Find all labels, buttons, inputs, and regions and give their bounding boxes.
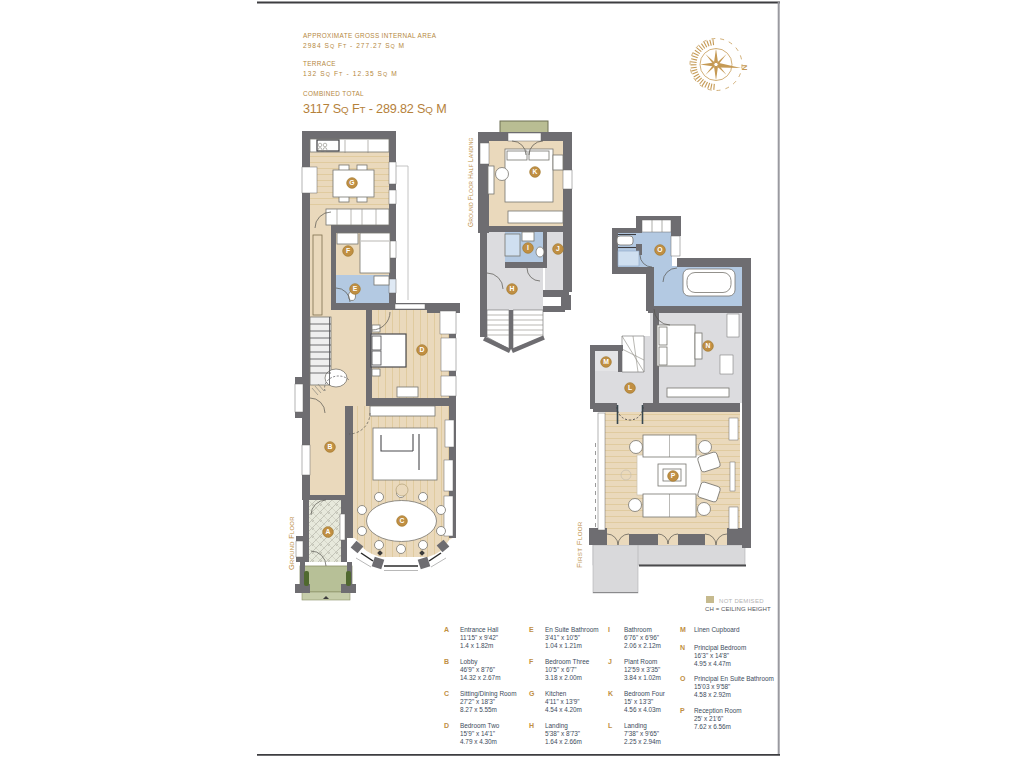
svg-text:L: L xyxy=(608,722,613,729)
svg-text:F: F xyxy=(346,247,350,254)
svg-text:O: O xyxy=(680,675,686,682)
svg-text:F: F xyxy=(529,658,534,665)
svg-text:Sitting/Dining Room: Sitting/Dining Room xyxy=(460,690,516,698)
svg-text:16'3" x 14'8": 16'3" x 14'8" xyxy=(694,652,729,659)
svg-text:11'15" x 9'42": 11'15" x 9'42" xyxy=(460,634,498,641)
svg-text:N: N xyxy=(740,65,749,71)
svg-text:J: J xyxy=(608,658,612,665)
svg-text:B: B xyxy=(444,658,449,665)
svg-text:A: A xyxy=(326,528,331,535)
svg-text:4.79 x 4.30m: 4.79 x 4.30m xyxy=(460,738,497,745)
svg-text:D: D xyxy=(444,722,449,729)
svg-text:4.56 x 4.03m: 4.56 x 4.03m xyxy=(624,706,661,713)
svg-text:COMBINED TOTAL: COMBINED TOTAL xyxy=(303,90,364,97)
svg-text:4'11" x 13'9": 4'11" x 13'9" xyxy=(545,698,580,705)
svg-text:1.04 x 1.21m: 1.04 x 1.21m xyxy=(545,642,582,649)
svg-text:7.62 x 6.56m: 7.62 x 6.56m xyxy=(694,723,731,730)
svg-text:E: E xyxy=(353,285,358,292)
svg-text:O: O xyxy=(657,246,662,253)
svg-text:1.4 x 1.82m: 1.4 x 1.82m xyxy=(460,642,493,649)
svg-text:15'03 x 9'58": 15'03 x 9'58" xyxy=(694,683,730,690)
svg-text:Bedroom Two: Bedroom Two xyxy=(460,722,500,729)
svg-text:G: G xyxy=(349,179,354,186)
svg-text:7'38" x 9'65": 7'38" x 9'65" xyxy=(624,730,659,737)
svg-text:132 SQ FT - 12.35 SQ M: 132 SQ FT - 12.35 SQ M xyxy=(303,70,398,77)
svg-text:NOT DEMISED: NOT DEMISED xyxy=(719,598,764,604)
svg-text:Entrance Hall: Entrance Hall xyxy=(460,626,498,633)
svg-text:GROUND FLOOR: GROUND FLOOR xyxy=(287,516,296,570)
svg-text:12'59 x 3'35": 12'59 x 3'35" xyxy=(624,666,660,673)
svg-text:TERRACE: TERRACE xyxy=(303,60,336,67)
svg-text:L: L xyxy=(628,384,632,391)
svg-text:H: H xyxy=(529,722,534,729)
svg-text:A: A xyxy=(444,626,449,633)
svg-text:10'5" x 6'7": 10'5" x 6'7" xyxy=(545,666,577,673)
svg-text:4.58 x 2.92m: 4.58 x 2.92m xyxy=(694,691,731,698)
svg-text:8.27 x 5.55m: 8.27 x 5.55m xyxy=(460,706,497,713)
svg-text:5'38" x 8'73": 5'38" x 8'73" xyxy=(545,730,580,737)
svg-text:Landing: Landing xyxy=(624,722,647,730)
svg-text:6'76" x 6'96": 6'76" x 6'96" xyxy=(624,634,659,641)
svg-text:J: J xyxy=(556,245,560,252)
svg-text:4.95 x 4.47m: 4.95 x 4.47m xyxy=(694,660,731,667)
svg-text:I: I xyxy=(527,244,529,251)
svg-text:En Suite Bathroom: En Suite Bathroom xyxy=(545,626,599,633)
svg-text:2984 SQ FT - 277.27 SQ M: 2984 SQ FT - 277.27 SQ M xyxy=(303,42,405,49)
svg-text:GROUND FLOOR HALF LANDING: GROUND FLOOR HALF LANDING xyxy=(467,137,474,227)
svg-text:Principal Bedroom: Principal Bedroom xyxy=(694,644,746,652)
svg-text:25' x 21'6": 25' x 21'6" xyxy=(694,715,723,722)
svg-text:M: M xyxy=(680,626,686,633)
svg-text:D: D xyxy=(420,346,425,353)
svg-text:Bathroom: Bathroom xyxy=(624,626,652,633)
svg-text:P: P xyxy=(680,707,685,714)
svg-text:K: K xyxy=(608,690,613,697)
svg-text:Lobby: Lobby xyxy=(460,658,478,666)
svg-text:H: H xyxy=(510,285,515,292)
svg-text:Linen Cupboard: Linen Cupboard xyxy=(694,626,740,634)
svg-text:N: N xyxy=(706,342,711,349)
svg-text:2.25 x 2.94m: 2.25 x 2.94m xyxy=(624,738,661,745)
svg-text:Kitchen: Kitchen xyxy=(545,690,567,697)
svg-text:46'9" x 8'76": 46'9" x 8'76" xyxy=(460,666,495,673)
svg-text:Bedroom Three: Bedroom Three xyxy=(545,658,590,665)
svg-text:3'41" x 10'5": 3'41" x 10'5" xyxy=(545,634,580,641)
svg-text:15'9" x 14'1": 15'9" x 14'1" xyxy=(460,730,495,737)
svg-text:Reception Room: Reception Room xyxy=(694,707,742,715)
svg-text:3.18 x 2.00m: 3.18 x 2.00m xyxy=(545,674,582,681)
svg-text:Bedroom Four: Bedroom Four xyxy=(624,690,666,697)
svg-text:3.84 x 1.02m: 3.84 x 1.02m xyxy=(624,674,661,681)
svg-text:E: E xyxy=(529,626,534,633)
svg-text:B: B xyxy=(328,443,333,450)
svg-text:G: G xyxy=(529,690,535,697)
svg-text:C: C xyxy=(400,517,405,524)
svg-text:27'2" x 18'3": 27'2" x 18'3" xyxy=(460,698,495,705)
svg-text:K: K xyxy=(533,168,538,175)
svg-text:C: C xyxy=(444,690,449,697)
svg-text:P: P xyxy=(671,472,676,479)
svg-text:1.64 x 2.66m: 1.64 x 2.66m xyxy=(545,738,582,745)
svg-text:FIRST FLOOR: FIRST FLOOR xyxy=(575,521,584,568)
svg-text:2.06 x 2.12m: 2.06 x 2.12m xyxy=(624,642,661,649)
svg-text:14.32 x 2.67m: 14.32 x 2.67m xyxy=(460,674,501,681)
svg-text:15' x 13'3": 15' x 13'3" xyxy=(624,698,653,705)
svg-text:CH = CEILING HEIGHT: CH = CEILING HEIGHT xyxy=(705,606,771,612)
svg-text:N: N xyxy=(680,644,685,651)
svg-text:M: M xyxy=(603,358,609,365)
svg-text:Principal En Suite Bathroom: Principal En Suite Bathroom xyxy=(694,675,774,683)
svg-text:APPROXIMATE GROSS INTERNAL ARE: APPROXIMATE GROSS INTERNAL AREA xyxy=(303,32,437,39)
svg-text:4.54 x 4.20m: 4.54 x 4.20m xyxy=(545,706,582,713)
svg-text:Landing: Landing xyxy=(545,722,568,730)
svg-text:I: I xyxy=(608,626,610,633)
svg-text:Plant Room: Plant Room xyxy=(624,658,657,665)
svg-text:3117 SQ FT - 289.82 SQ M: 3117 SQ FT - 289.82 SQ M xyxy=(303,102,446,116)
